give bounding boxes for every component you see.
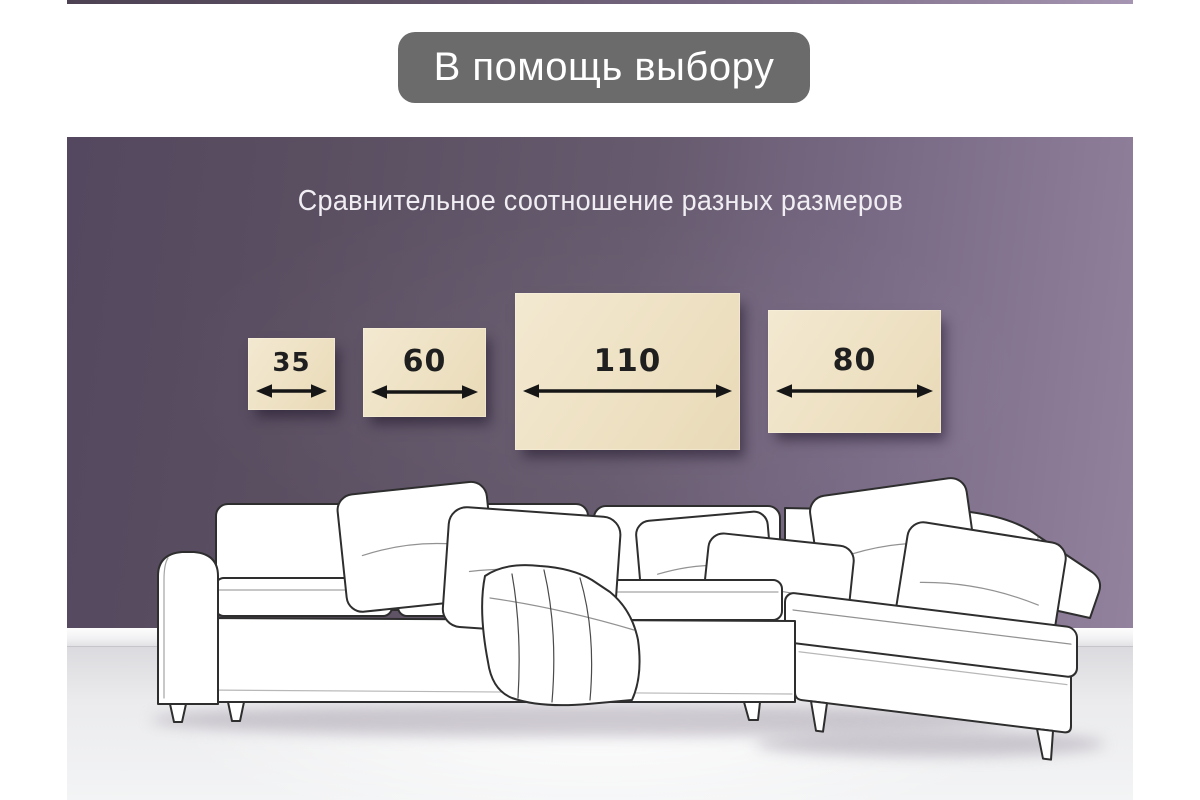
size-box-60: 60: [363, 328, 486, 417]
width-arrow-icon: [256, 382, 327, 400]
header-badge-label: В помощь выбору: [434, 45, 775, 90]
size-box-110: 110: [515, 293, 740, 450]
width-arrow-icon: [776, 382, 933, 400]
size-label: 110: [594, 345, 662, 378]
size-label: 60: [403, 346, 447, 378]
size-label: 80: [833, 345, 877, 377]
header-badge: В помощь выбору: [398, 32, 810, 103]
panel-title: Сравнительное соотношение разных размеро…: [67, 185, 1133, 218]
sofa-illustration: [140, 480, 1133, 780]
width-arrow-icon: [523, 382, 732, 400]
size-guide-infographic: В помощь выбору Сравнительное соотношени…: [0, 0, 1200, 800]
top-divider: [67, 0, 1133, 4]
room-panel: Сравнительное соотношение разных размеро…: [67, 137, 1133, 800]
size-box-80: 80: [768, 310, 941, 433]
size-label: 35: [272, 350, 310, 377]
size-box-35: 35: [248, 338, 335, 410]
width-arrow-icon: [371, 383, 478, 401]
panel-title-text: Сравнительное соотношение разных размеро…: [297, 185, 902, 218]
